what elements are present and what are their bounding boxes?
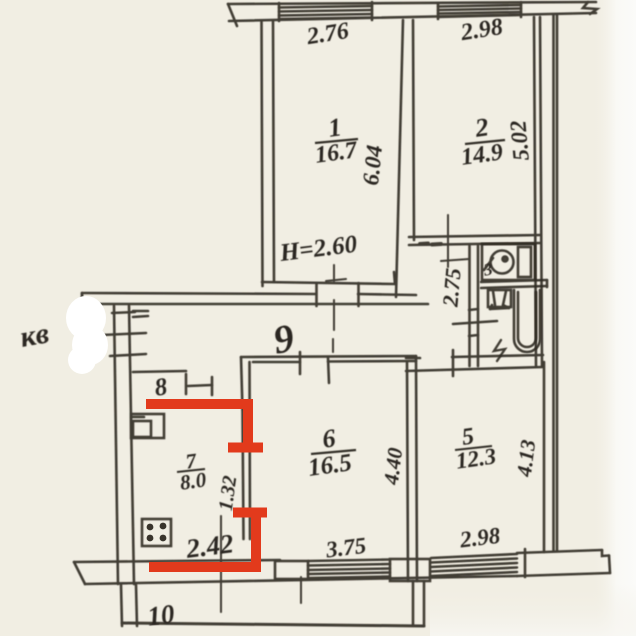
svg-text:3.75: 3.75 <box>324 533 368 563</box>
svg-text:2.75: 2.75 <box>437 267 465 309</box>
svg-text:кв: кв <box>17 316 51 353</box>
svg-text:4.13: 4.13 <box>512 438 540 478</box>
svg-text:6.04: 6.04 <box>358 144 387 187</box>
svg-text:10: 10 <box>146 598 177 631</box>
svg-text:2.42: 2.42 <box>184 528 236 564</box>
svg-text:4.40: 4.40 <box>379 446 407 487</box>
svg-text:2.98: 2.98 <box>458 523 502 553</box>
svg-text:5.02: 5.02 <box>505 120 533 162</box>
